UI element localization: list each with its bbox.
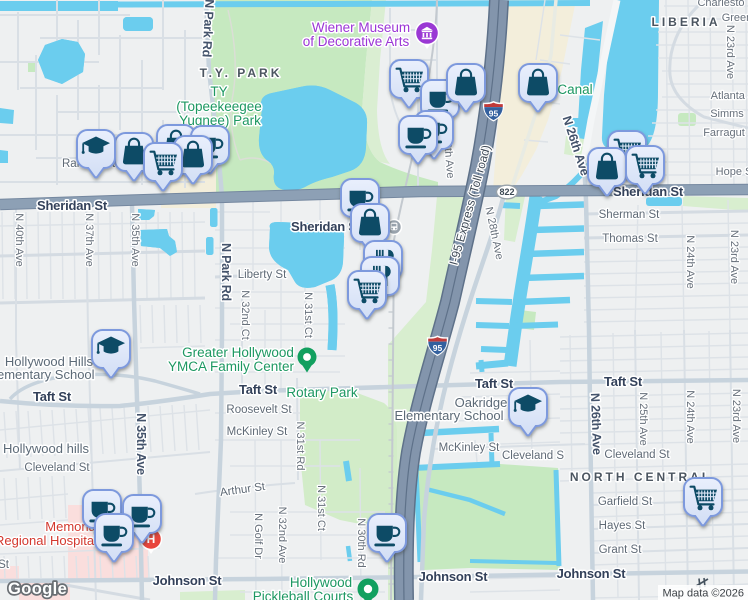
svg-text:Simms: Simms: [710, 108, 744, 120]
svg-text:Garfield St: Garfield St: [598, 496, 653, 508]
svg-text:N 23rd Ave: N 23rd Ave: [724, 25, 736, 79]
svg-text:McKinley St: McKinley St: [439, 442, 501, 454]
svg-text:Regional Hospital: Regional Hospital: [0, 533, 97, 548]
svg-text:Atlanta S: Atlanta S: [711, 90, 748, 102]
svg-text:N 25th Ave: N 25th Ave: [637, 392, 649, 446]
svg-text:Elementary School: Elementary School: [394, 408, 503, 423]
svg-text:Liberty St: Liberty St: [238, 269, 287, 281]
svg-text:Taft St: Taft St: [604, 374, 643, 389]
svg-text:Pickleball Courts: Pickleball Courts: [253, 589, 354, 600]
svg-text:N 32nd Ave: N 32nd Ave: [276, 507, 288, 564]
svg-text:95: 95: [489, 109, 499, 119]
svg-text:N 35th Ave: N 35th Ave: [129, 213, 141, 267]
svg-text:Johnson St: Johnson St: [153, 573, 223, 588]
svg-text:N 31st Ct: N 31st Ct: [315, 485, 327, 531]
svg-text:822: 822: [499, 187, 514, 197]
svg-text:Thomas St: Thomas St: [602, 233, 658, 245]
svg-text:Johnson St: Johnson St: [557, 566, 627, 581]
svg-text:N 24th Ave: N 24th Ave: [684, 235, 696, 289]
svg-text:N 23rd Ave: N 23rd Ave: [730, 389, 742, 443]
svg-text:of Decorative Arts: of Decorative Arts: [303, 34, 410, 49]
svg-text:Greater Hollywood: Greater Hollywood: [182, 345, 294, 360]
svg-text:Cleveland St: Cleveland St: [604, 449, 670, 461]
svg-text:YMCA Family Center: YMCA Family Center: [168, 359, 295, 374]
svg-text:N Park Rd: N Park Rd: [219, 243, 233, 301]
svg-text:Google: Google: [8, 580, 67, 598]
svg-text:Hayes St: Hayes St: [599, 520, 646, 532]
svg-text:N Park Rd: N Park Rd: [199, 0, 216, 58]
svg-text:Taft St: Taft St: [475, 376, 514, 391]
svg-text:Charlesto: Charlesto: [697, 0, 744, 9]
svg-text:Roosevelt St: Roosevelt St: [226, 404, 292, 416]
svg-text:N 24th Ave: N 24th Ave: [684, 390, 696, 444]
svg-text:N 26th Ave: N 26th Ave: [588, 393, 604, 455]
svg-text:N 30th Rd: N 30th Rd: [355, 518, 367, 568]
svg-text:Johnson St: Johnson St: [419, 569, 489, 584]
svg-text:N 37th Ave: N 37th Ave: [83, 213, 95, 267]
svg-text:Green: Green: [722, 12, 748, 24]
svg-text:T.Y. PARK: T.Y. PARK: [200, 66, 283, 80]
svg-text:(Topeekeegee: (Topeekeegee: [176, 99, 262, 114]
svg-text:Sheridan St: Sheridan St: [37, 198, 108, 213]
svg-text:N 35th Ave: N 35th Ave: [134, 413, 148, 475]
svg-text:St: St: [0, 559, 10, 571]
svg-text:Cleveland S: Cleveland S: [502, 450, 564, 462]
svg-text:Rotary Park: Rotary Park: [286, 385, 358, 400]
svg-text:Taft St: Taft St: [33, 389, 72, 404]
svg-text:Canal: Canal: [557, 82, 592, 97]
svg-text:Hollywood: Hollywood: [290, 575, 352, 590]
svg-text:Map data ©2026: Map data ©2026: [663, 588, 745, 600]
svg-text:Hope S: Hope S: [716, 166, 748, 178]
svg-text:N Golf Dr: N Golf Dr: [252, 513, 264, 559]
svg-text:LIBERIA: LIBERIA: [652, 15, 721, 29]
svg-text:N 32nd Ct: N 32nd Ct: [239, 290, 251, 340]
svg-text:Grant St: Grant St: [599, 544, 643, 556]
svg-text:N 31st Ct: N 31st Ct: [302, 292, 314, 338]
svg-text:Hollywood hills: Hollywood hills: [3, 441, 89, 456]
svg-text:N 23rd Ave: N 23rd Ave: [728, 230, 740, 284]
svg-text:Wiener Museum: Wiener Museum: [312, 20, 410, 35]
svg-text:Farragut: Farragut: [703, 127, 745, 139]
svg-text:Taft St: Taft St: [239, 382, 278, 397]
svg-text:N 31st Rd: N 31st Rd: [294, 422, 306, 471]
svg-text:Sherman St: Sherman St: [599, 209, 661, 221]
svg-text:Elementary School: Elementary School: [0, 367, 95, 382]
svg-text:McKinley St: McKinley St: [227, 426, 289, 438]
svg-text:Cleveland St: Cleveland St: [24, 462, 90, 474]
svg-text:TY: TY: [210, 84, 227, 99]
svg-text:N 40th Ave: N 40th Ave: [13, 213, 25, 267]
svg-text:95: 95: [433, 343, 443, 353]
